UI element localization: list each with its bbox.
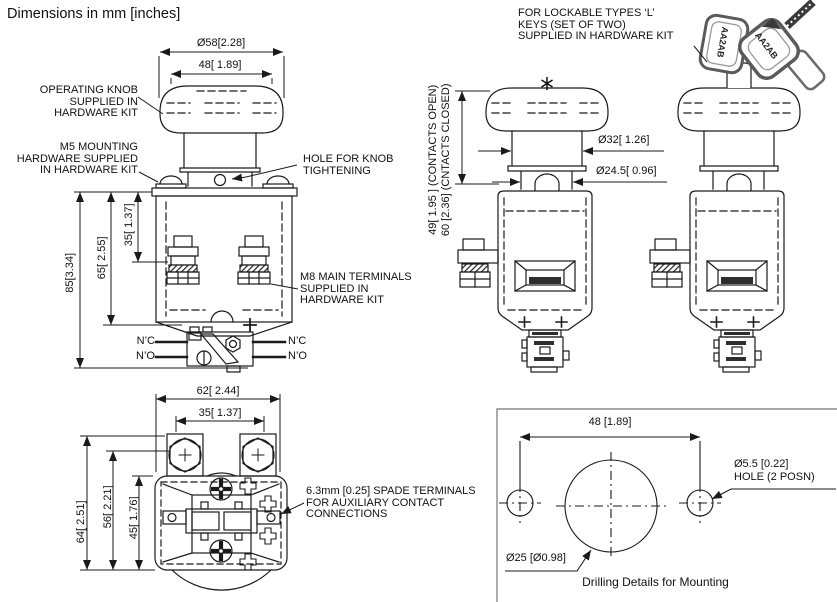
aux-label-nc-left: N’C — [123, 336, 155, 348]
side-view-body — [458, 88, 608, 372]
dim-stem-diameter: Ø32[ 1.26] — [598, 135, 649, 147]
dim-knob-top-width: 48[ 1.89] — [170, 60, 270, 72]
main-terminal-right — [238, 236, 270, 284]
drilling-details — [497, 409, 837, 602]
dim-inner-depth: 56[ 2.21] — [103, 477, 115, 537]
label-m8-terminals: M8 MAIN TERMINALS SUPPLIED IN HARDWARE K… — [300, 272, 412, 307]
mounting-plate — [152, 188, 297, 196]
dim-overall-depth: 64[ 2.51] — [76, 492, 88, 552]
knob-outline — [160, 86, 283, 133]
dim-mount-hole-note: HOLE (2 POSN) — [734, 472, 815, 484]
leader-m5-mounting — [139, 172, 158, 182]
aux-contact-block — [186, 502, 257, 540]
leader-m8-terminals — [271, 284, 298, 289]
drilling-caption: Drilling Details for Mounting — [563, 577, 748, 589]
mounting-screw-right — [263, 176, 293, 188]
page-title: Dimensions in mm [inches] — [7, 6, 180, 22]
aux-contact-wires — [156, 342, 285, 357]
drilling-box-border — [497, 409, 837, 602]
label-operating-knob: OPERATING KNOB SUPPLIED IN HARDWARE KIT — [26, 85, 138, 120]
body-hidden-lines — [166, 202, 282, 316]
dim-mount-hole: Ø5.5 [0.22] — [734, 459, 788, 471]
front-view — [152, 86, 297, 372]
phillips-screw-top — [210, 478, 232, 500]
dim-travel-open: 49[ 1.95 ] (CONTACTS OPEN) — [428, 75, 440, 245]
knob-hidden-lines — [167, 91, 276, 113]
lockable-view-body — [650, 88, 800, 372]
dim-body-height: 65[ 2.55] — [97, 228, 109, 288]
dim-body-depth: 45[ 1.76] — [129, 488, 141, 548]
knob-stem — [180, 133, 260, 186]
dim-neck-diameter: Ø24.5[ 0.96] — [596, 166, 657, 178]
body-front — [156, 196, 292, 322]
dim-base-width: 62[ 2.44] — [178, 386, 258, 398]
actuator-dome — [211, 311, 233, 322]
phillips-screw-bottom — [210, 540, 232, 562]
mounting-screw-left — [156, 176, 186, 188]
keys-group: AA2AB AA2AB — [694, 2, 827, 92]
dim-travel-closed: 60 [2.36] (CNTACTS CLOSED) — [441, 75, 453, 245]
label-lockable-keys: FOR LOCKABLE TYPES ‘L’ KEYS (SET OF TWO)… — [518, 8, 673, 43]
aux-hex-nut — [226, 336, 240, 352]
aux-label-no-right: N’O — [288, 351, 307, 363]
dim-terminal-pitch: 35[ 1.37] — [180, 408, 260, 420]
aux-label-nc-right: N’C — [288, 336, 306, 348]
leader-mount-hole — [712, 489, 836, 499]
dim-terminal-height: 35[ 1.37] — [124, 195, 136, 255]
dim-overall-height: 85[3.34] — [65, 243, 77, 303]
label-spade-terminals: 6.3mm [0.25] SPADE TERMINALS FOR AUXILIA… — [306, 486, 476, 521]
label-m5-mounting: M5 MOUNTING HARDWARE SUPPLIED IN HARDWAR… — [6, 142, 138, 177]
bottom-view — [155, 434, 287, 590]
taper-cross-mark — [244, 319, 256, 331]
dim-knob-diameter: Ø58[2.28] — [171, 38, 271, 50]
leader-spade-terminals — [281, 503, 304, 514]
aux-label-no-left: N’O — [123, 351, 155, 363]
knob-tightening-hole — [215, 175, 226, 186]
spade-terminal-right — [257, 511, 280, 524]
leader-operating-knob — [138, 97, 163, 114]
aux-microswitch — [187, 332, 253, 372]
main-terminal — [167, 236, 199, 284]
engineering-drawing-page: AA2AB AA2AB — [0, 0, 837, 602]
body-taper — [156, 322, 292, 336]
dim-hole-pitch: 48 [1.89] — [555, 417, 665, 429]
spade-terminal-left — [163, 511, 186, 524]
dim-center-hole: Ø25 [Ø0.98] — [506, 553, 566, 565]
label-hole-for-knob: HOLE FOR KNOB TIGHTENING — [303, 154, 393, 177]
